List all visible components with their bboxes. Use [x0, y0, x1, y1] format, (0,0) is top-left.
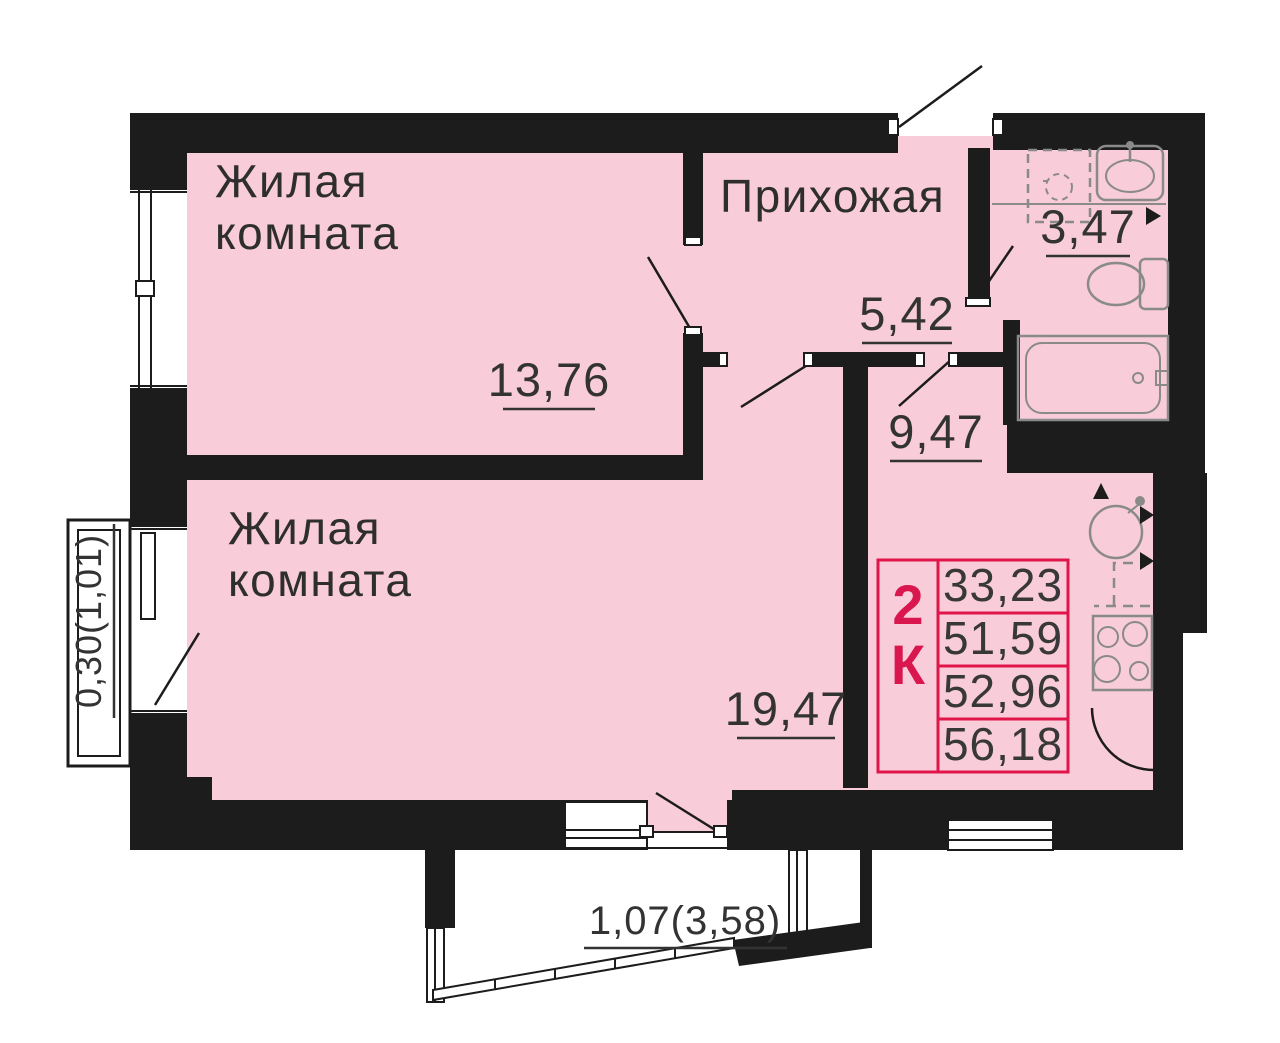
- entrance-door-leaf: [899, 66, 982, 127]
- living-bottom-label-line1: Жилая: [228, 502, 381, 554]
- loggia-dimension: 0,30(1,01): [68, 524, 114, 718]
- hallway-area: 5,42: [859, 287, 954, 340]
- living-bottom-label-line2: комната: [228, 554, 412, 606]
- window-living-bottom: [565, 802, 647, 848]
- entrance-door: [888, 66, 1003, 135]
- table-row-value: 33,23: [943, 559, 1063, 611]
- hallway-label: Прихожая: [720, 170, 945, 222]
- living-top-label-line2: комната: [215, 207, 399, 259]
- balcony-dimension-value: 1,07(3,58): [589, 899, 781, 943]
- living-top-area: 13,76: [488, 353, 611, 406]
- balcony-dimension: 1,07(3,58): [584, 899, 787, 948]
- window-kitchen: [948, 820, 1053, 850]
- apartment-type-letter: К: [891, 633, 926, 696]
- table-row-value: 52,96: [943, 665, 1063, 717]
- apartment-type-digit: 2: [892, 573, 923, 636]
- floor-plan-page: 2 К 33,23 51,59 52,96 56,18 Жилая комнат…: [0, 0, 1280, 1043]
- living-top-label-line1: Жилая: [215, 155, 368, 207]
- floor-plan-canvas: 2 К 33,23 51,59 52,96 56,18 Жилая комнат…: [0, 0, 1280, 1043]
- loggia-dimension-value: 0,30(1,01): [68, 534, 109, 708]
- bathroom-area: 3,47: [1040, 200, 1135, 253]
- table-row-value: 56,18: [943, 718, 1063, 770]
- balcony-door-opening: [640, 793, 727, 850]
- kitchen-area: 9,47: [888, 405, 983, 458]
- living-bottom-area: 19,47: [725, 682, 848, 735]
- window-living-top: [130, 190, 187, 388]
- table-row-value: 51,59: [943, 612, 1063, 664]
